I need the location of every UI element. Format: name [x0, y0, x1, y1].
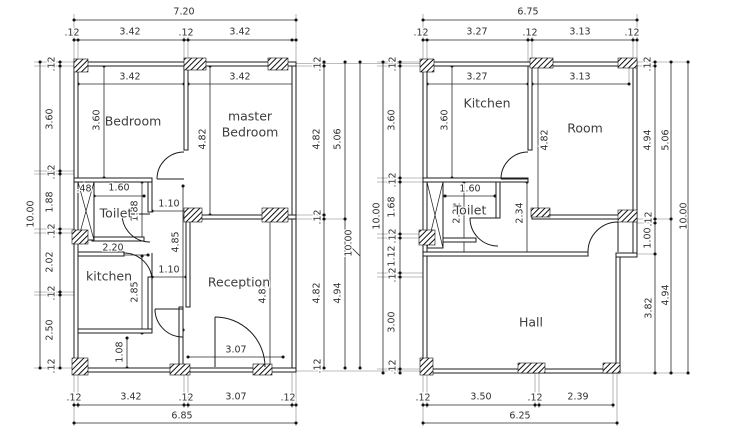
- hatch-block: [618, 58, 637, 68]
- dim-label: 1.00: [643, 227, 654, 248]
- dim-label: 4.94: [643, 129, 654, 150]
- dim-label: .12: [415, 393, 430, 404]
- dim-label: .12: [522, 28, 537, 39]
- hatch-block: [253, 364, 272, 375]
- dim-label: .12: [47, 56, 58, 71]
- dim-label: 3.27: [466, 72, 487, 83]
- dim-label: 3.27: [466, 27, 487, 38]
- dim-label: 3.42: [120, 392, 141, 403]
- dim-label: .12: [388, 56, 399, 71]
- dim-label: 2.02: [45, 251, 56, 272]
- dim-label: .12: [413, 28, 428, 39]
- wall-segment: [423, 252, 588, 256]
- hatch-block: [268, 58, 288, 70]
- dim-label: 3.60: [45, 108, 56, 129]
- dim-label: .12: [313, 209, 324, 224]
- dim-label: 3.60: [92, 109, 103, 130]
- dim-label: 6.85: [171, 411, 192, 422]
- wall-segment: [496, 182, 500, 218]
- dim-label: .12: [313, 358, 324, 373]
- dim-label: 3.42: [119, 27, 140, 38]
- dim-label: 3.42: [229, 72, 250, 83]
- wall-segment: [148, 277, 152, 329]
- wall-segment: [616, 257, 620, 369]
- room-label: Room: [567, 121, 603, 136]
- dim-label: .12: [47, 164, 58, 179]
- wall-segment: [633, 66, 637, 253]
- dim-label: .12: [388, 172, 399, 187]
- dim-label: 3.50: [470, 392, 491, 403]
- dim-label: 2.34: [515, 202, 526, 223]
- dim-label: 3.13: [569, 27, 590, 38]
- dim-label: 4.82: [312, 282, 323, 303]
- wall-segment: [186, 219, 190, 307]
- dim-label: .12: [47, 358, 58, 373]
- dim-label: 3.60: [440, 109, 451, 130]
- hatch-block: [531, 208, 550, 217]
- dim-label: 4.82: [312, 128, 323, 149]
- dim-label: 10.00: [679, 202, 690, 229]
- dim-label: 1.88: [45, 191, 56, 212]
- dim-label: .12: [643, 56, 654, 71]
- door-swing: [588, 222, 618, 252]
- hatch-block: [74, 59, 88, 72]
- dim-label: 6.25: [509, 411, 530, 422]
- right-floor-plan: 6.75.123.27.123.13.123.273.131.60.123.50…: [372, 7, 690, 427]
- dim-label: .12: [47, 285, 58, 300]
- dim-label: 3.07: [225, 345, 246, 356]
- dim-label: 7.20: [173, 7, 194, 18]
- dim-label: 3.42: [119, 72, 140, 83]
- wall-segment: [179, 307, 183, 368]
- hatch-block: [262, 208, 288, 222]
- floor-plan-canvas: 7.20.123.42.123.423.423.42.481.601.102.2…: [0, 0, 735, 434]
- room-label: Toilet: [99, 206, 133, 221]
- floor-plan-drawing: 7.20.123.42.123.423.423.42.481.601.102.2…: [0, 0, 735, 434]
- dim-label: .12: [388, 359, 399, 374]
- dim-label: 1.60: [459, 184, 480, 195]
- dim-label: 3.82: [644, 297, 655, 318]
- hatch-block: [603, 363, 620, 373]
- wall-segment: [616, 253, 637, 257]
- hatch-block: [184, 58, 206, 70]
- doors: [122, 152, 265, 367]
- dim-label: .12: [644, 211, 655, 226]
- dim-label: 10.00: [372, 202, 383, 229]
- dim-label: 1.12: [387, 245, 398, 266]
- hatch-block: [419, 230, 435, 245]
- room-label: kitchen: [86, 269, 132, 284]
- room-label: Toilet: [453, 203, 487, 218]
- dim-label: 4.85: [171, 231, 182, 252]
- door-swing: [157, 152, 184, 179]
- dim-label: 3.42: [229, 27, 250, 38]
- dim-label: 10.00: [344, 229, 355, 256]
- dim-label: 4.82: [540, 129, 551, 150]
- dim-label: .48: [76, 184, 91, 195]
- left-floor-plan: 7.20.123.42.123.423.423.42.481.601.102.2…: [26, 7, 424, 427]
- hatch-block: [618, 210, 637, 222]
- hatch-block: [184, 208, 202, 222]
- dim-label: 1.60: [108, 183, 129, 194]
- hatch-block: [420, 59, 434, 72]
- dim-label: .12: [178, 28, 193, 39]
- dim-label: 1.68: [387, 196, 398, 217]
- dim-label: .12: [178, 393, 193, 404]
- wall-segment: [74, 178, 152, 182]
- dim-label: 3.60: [387, 109, 398, 130]
- hatch-block: [518, 363, 545, 373]
- room-label: Reception: [208, 275, 270, 290]
- dim-label: 3.07: [225, 392, 246, 403]
- door-swing: [215, 317, 265, 367]
- wall-segment: [184, 66, 188, 150]
- dim-label: 4.94: [661, 284, 672, 305]
- dim-label: 5.06: [333, 128, 344, 149]
- doors: [470, 152, 618, 252]
- dim-label: 4.82: [198, 128, 209, 149]
- door-swing: [501, 152, 528, 179]
- room-label: Bedroom: [222, 125, 279, 140]
- dim-label: 2.39: [567, 392, 588, 403]
- dim-label: .12: [313, 56, 324, 71]
- dim-label: .12: [527, 393, 542, 404]
- room-label: Hall: [519, 315, 543, 330]
- dim-label: 2.85: [130, 281, 141, 302]
- hatch-block: [420, 358, 433, 375]
- wall-segment: [528, 66, 532, 150]
- dim-label: 3.00: [387, 311, 398, 332]
- wall-segment: [423, 66, 427, 369]
- wall-segment: [443, 238, 476, 242]
- hatch-block: [170, 364, 190, 375]
- dim-label: 3.13: [569, 72, 590, 83]
- room-label: master: [228, 109, 273, 124]
- dim-label: 5.06: [661, 129, 672, 150]
- wall-segment: [148, 182, 152, 212]
- dim-label: .12: [64, 28, 79, 39]
- dim-label: .12: [66, 393, 81, 404]
- dim-label: 1.10: [158, 265, 179, 276]
- wall-segment: [74, 66, 78, 368]
- dim-label: 1.10: [158, 199, 179, 210]
- dim-label: 6.75: [517, 7, 538, 18]
- hatch-block: [72, 358, 88, 375]
- dim-label: .12: [280, 393, 295, 404]
- dim-label: 10.00: [26, 200, 37, 227]
- room-label: Kitchen: [464, 96, 511, 111]
- dim-label: .12: [624, 28, 639, 39]
- dim-label: 2.50: [45, 319, 56, 340]
- dim-label: 2.20: [102, 243, 123, 254]
- hatch-block: [530, 58, 553, 68]
- dim-label: 4.94: [333, 282, 344, 303]
- dim-label: .12: [388, 228, 399, 243]
- wall-segment: [78, 329, 152, 333]
- dim-label: 1.08: [115, 341, 126, 362]
- hatch-block: [72, 230, 88, 244]
- room-label: Bedroom: [105, 114, 162, 129]
- dim-label: .12: [47, 223, 58, 238]
- dim-label: .12: [388, 267, 399, 282]
